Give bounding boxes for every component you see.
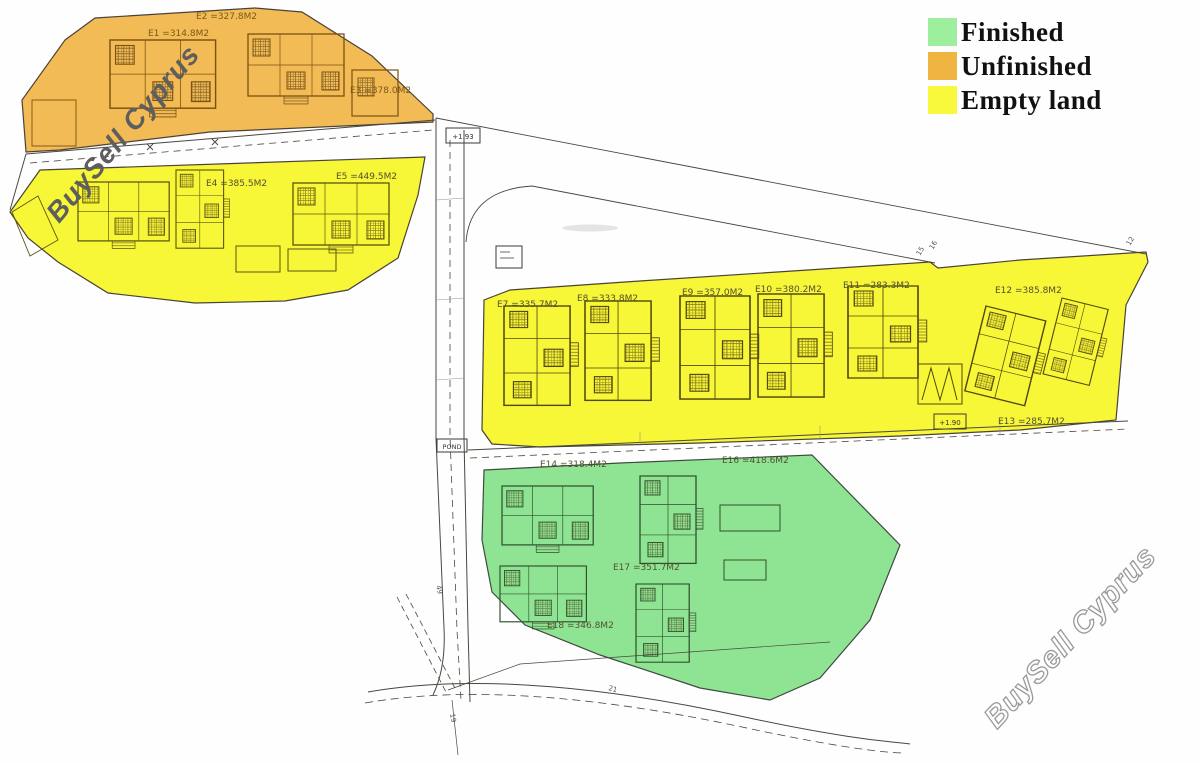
legend-row-finished: Finished	[928, 18, 1102, 46]
plot-label-E12: E12 =385.8M2	[995, 286, 1062, 296]
plot-label-E13: E13 =285.7M2	[998, 417, 1065, 427]
road-bottom-diagonal	[397, 597, 447, 694]
plot-label-E17: E17 =351.7M2	[613, 563, 680, 573]
road-vertical-centerline	[450, 140, 461, 700]
plot-label-E1: E1 =314.8M2	[148, 29, 209, 39]
site-plan-screenshot: E1 =314.8M2 E2 =327.8M2 E3 =378.0M2 E4 =…	[0, 0, 1200, 763]
svg-text:+1.90: +1.90	[939, 419, 960, 427]
plot-label-E9: E9 =357.0M2	[682, 288, 743, 298]
legend-label-finished: Finished	[961, 19, 1064, 46]
plot-label-E8: E8 =333.8M2	[577, 294, 638, 304]
legend-row-unfinished: Unfinished	[928, 52, 1102, 80]
legend-label-unfinished: Unfinished	[961, 53, 1092, 80]
road-bottom-diagonal-2	[406, 594, 456, 690]
empty-land-color-swatch	[928, 86, 957, 114]
survey-number: 12	[1125, 235, 1136, 247]
plot-label-E3: E3 =378.0M2	[350, 86, 411, 96]
boundary-diagonal-long	[436, 118, 1146, 254]
plot-label-E10: E10 =380.2M2	[755, 285, 822, 295]
plot-label-E4: E4 =385.5M2	[206, 179, 267, 189]
elevation-marker: +1.93	[446, 128, 480, 143]
boundary-corner-curve	[466, 186, 935, 263]
road-bottom-sweep-dashed	[365, 694, 906, 753]
region-finished	[482, 455, 900, 700]
scan-artifact	[562, 225, 618, 232]
legend-row-empty: Empty land	[928, 86, 1102, 114]
pond-marker: POND	[437, 439, 467, 452]
road-vertical-right	[464, 130, 470, 702]
plot-label-E5: E5 =449.5M2	[336, 172, 397, 182]
svg-text:POND: POND	[443, 443, 462, 451]
svg-text:+1.93: +1.93	[452, 133, 473, 141]
road-vertical-left	[433, 118, 444, 695]
plot-label-E11: E11 =283.3M2	[843, 281, 910, 291]
plot-label-E7: E7 =335.7M2	[497, 300, 558, 310]
plot-label-E2: E2 =327.8M2	[196, 12, 257, 22]
utility-box	[496, 246, 522, 268]
legend: Finished Unfinished Empty land	[928, 18, 1102, 120]
road-bottom-stub	[452, 700, 458, 755]
unfinished-color-swatch	[928, 52, 957, 80]
finished-color-swatch	[928, 18, 957, 46]
plot-label-E14: E14 =318.4M2	[540, 460, 607, 470]
survey-number: 15	[915, 245, 926, 257]
plot-label-E16: E16 =418.6M2	[722, 456, 789, 466]
survey-number: 19	[448, 713, 457, 723]
legend-label-empty: Empty land	[961, 87, 1102, 114]
survey-number: 16	[928, 239, 940, 251]
plot-label-E18: E18 =346.8M2	[547, 621, 614, 631]
